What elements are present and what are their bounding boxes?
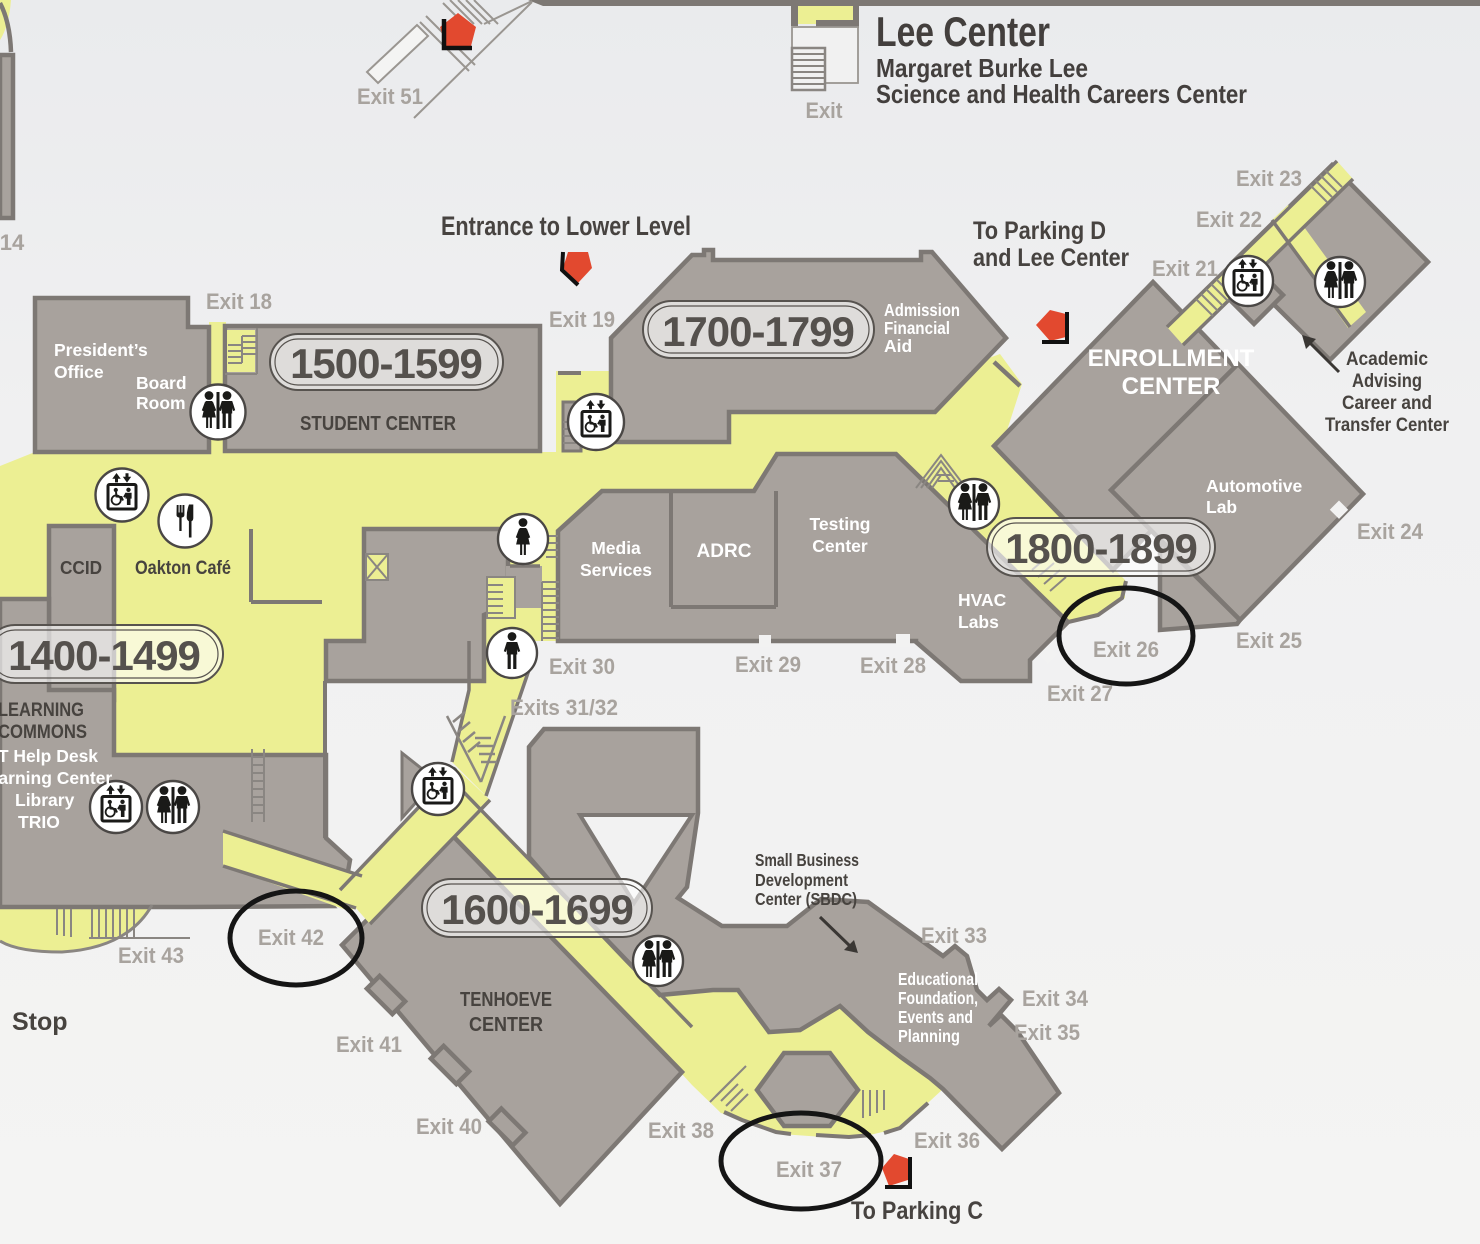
svg-text:Exit 24: Exit 24 [1357, 519, 1424, 544]
svg-text:HVAC: HVAC [958, 590, 1007, 610]
svg-text:Admission: Admission [884, 300, 960, 320]
svg-text:Foundation,: Foundation, [898, 988, 978, 1008]
svg-text:Planning: Planning [898, 1026, 960, 1046]
svg-text:and Lee Center: and Lee Center [973, 244, 1129, 272]
svg-text:Exit 36: Exit 36 [914, 1128, 980, 1153]
svg-text:STUDENT CENTER: STUDENT CENTER [300, 413, 456, 435]
svg-text:CENTER: CENTER [1122, 373, 1221, 400]
svg-text:Exit 21: Exit 21 [1152, 256, 1218, 281]
svg-text:Transfer Center: Transfer Center [1325, 415, 1450, 436]
svg-text:Exit 29: Exit 29 [735, 652, 801, 677]
svg-text:Exit 42: Exit 42 [258, 925, 324, 950]
svg-text:1700-1799: 1700-1799 [662, 308, 854, 355]
svg-text:President’s: President’s [54, 340, 148, 360]
svg-text:Exit 23: Exit 23 [1236, 166, 1302, 191]
svg-text:1600-1699: 1600-1699 [441, 886, 633, 933]
svg-text:Room: Room [136, 393, 186, 413]
svg-text:Labs: Labs [958, 612, 999, 632]
svg-text:Exit 28: Exit 28 [860, 653, 926, 678]
svg-text:Academic: Academic [1346, 349, 1428, 370]
svg-text:Services: Services [580, 560, 652, 580]
svg-text:Office: Office [54, 362, 104, 382]
svg-text:Exit 51: Exit 51 [357, 84, 423, 109]
svg-text:Entrance to Lower Level: Entrance to Lower Level [441, 211, 691, 241]
svg-text:Exits 31/32: Exits 31/32 [510, 695, 618, 720]
svg-text:Exit 34: Exit 34 [1022, 986, 1089, 1011]
svg-text:1800-1899: 1800-1899 [1005, 525, 1197, 572]
svg-text:Exit 41: Exit 41 [336, 1032, 402, 1057]
svg-text:CENTER: CENTER [469, 1014, 543, 1036]
svg-text:LEARNING: LEARNING [0, 700, 84, 721]
svg-text:Exit 25: Exit 25 [1236, 628, 1302, 653]
svg-text:Advising: Advising [1352, 371, 1422, 392]
svg-text:Learning Center: Learning Center [0, 768, 112, 788]
svg-text:TENHOEVE: TENHOEVE [460, 989, 552, 1011]
svg-text:1500-1599: 1500-1599 [290, 340, 482, 387]
svg-text:Educational: Educational [898, 969, 978, 989]
svg-text:Science and Health Careers Cen: Science and Health Careers Center [876, 79, 1247, 109]
svg-text:Exit 35: Exit 35 [1014, 1020, 1080, 1045]
svg-text:Aid: Aid [884, 336, 912, 356]
svg-text:Exit 27: Exit 27 [1047, 681, 1113, 706]
svg-text:Lee Center: Lee Center [876, 8, 1050, 55]
svg-text:14: 14 [0, 230, 25, 255]
svg-text:Board: Board [136, 373, 187, 393]
svg-text:Exit: Exit [806, 98, 844, 123]
svg-text:IT Help Desk: IT Help Desk [0, 746, 98, 766]
svg-text:ADRC: ADRC [697, 541, 752, 562]
svg-text:Testing: Testing [810, 514, 871, 534]
svg-text:1400-1499: 1400-1499 [8, 632, 200, 679]
svg-text:Exit 22: Exit 22 [1196, 207, 1262, 232]
svg-text:Exit 33: Exit 33 [921, 923, 987, 948]
svg-text:COMMONS: COMMONS [0, 722, 87, 743]
svg-text:Exit 26: Exit 26 [1093, 637, 1159, 662]
svg-text:Library: Library [15, 790, 75, 810]
svg-text:Exit 38: Exit 38 [648, 1118, 714, 1143]
svg-text:Media: Media [591, 538, 641, 558]
svg-text:Career and: Career and [1342, 393, 1432, 414]
svg-text:Exit 37: Exit 37 [776, 1157, 842, 1182]
svg-text:Exit 40: Exit 40 [416, 1114, 482, 1139]
svg-text:To Parking C: To Parking C [851, 1197, 983, 1225]
svg-text:Center (SBDC): Center (SBDC) [755, 889, 857, 909]
svg-text:Center: Center [812, 536, 868, 556]
svg-text:Exit 30: Exit 30 [549, 654, 615, 679]
svg-text:Automotive: Automotive [1206, 476, 1303, 496]
svg-text:Exit 43: Exit 43 [118, 943, 184, 968]
svg-text:Exit 19: Exit 19 [549, 307, 615, 332]
svg-text:ENROLLMENT: ENROLLMENT [1088, 345, 1255, 372]
svg-text:Lab: Lab [1206, 497, 1237, 517]
svg-text:Events and: Events and [898, 1007, 973, 1027]
svg-text:To Parking D: To Parking D [973, 217, 1106, 245]
svg-text:Small Business: Small Business [755, 850, 859, 870]
svg-text:Development: Development [755, 870, 848, 890]
svg-text:Exit 18: Exit 18 [206, 289, 272, 314]
svg-text:Oakton Café: Oakton Café [135, 558, 231, 579]
svg-text:CCID: CCID [60, 558, 102, 578]
svg-text:Financial: Financial [884, 318, 950, 338]
svg-text:TRIO: TRIO [18, 812, 60, 832]
svg-text:Stop: Stop [12, 1008, 68, 1036]
